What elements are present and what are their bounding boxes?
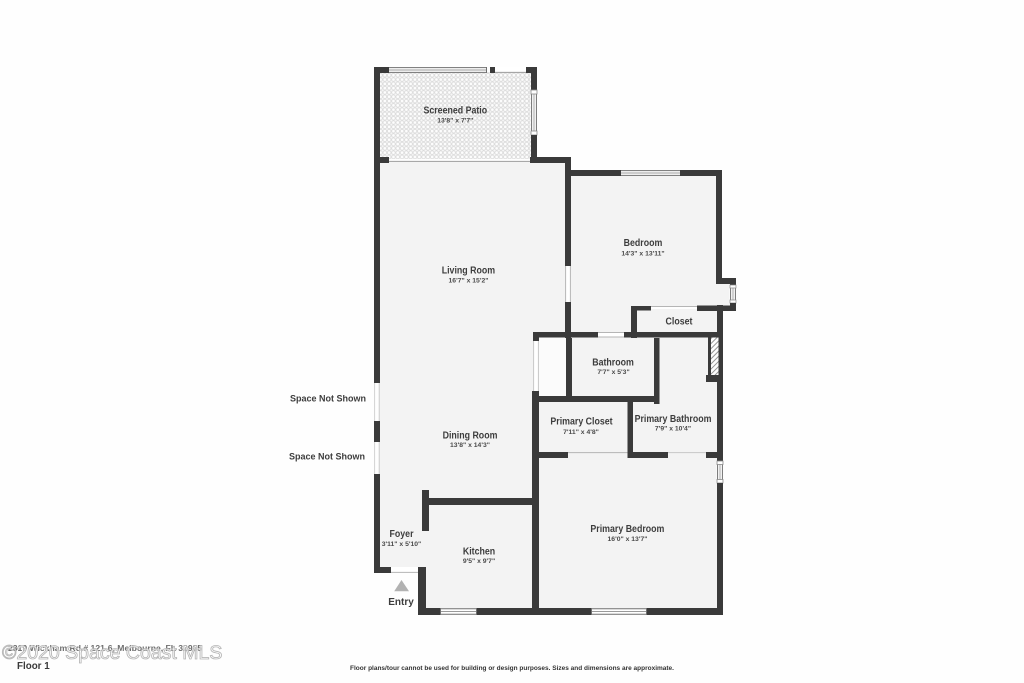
svg-text:Screened Patio: Screened Patio (423, 105, 487, 116)
svg-text:Primary Bathroom: Primary Bathroom (635, 414, 712, 425)
svg-text:3'11" x 5'10": 3'11" x 5'10" (382, 541, 422, 548)
svg-text:7'7" x 5'3": 7'7" x 5'3" (597, 369, 629, 376)
svg-text:Living Room: Living Room (442, 265, 495, 276)
svg-text:7'11" x 4'8": 7'11" x 4'8" (563, 429, 599, 436)
svg-text:Primary Bedroom: Primary Bedroom (590, 524, 664, 535)
svg-text:Space Not Shown: Space Not Shown (289, 452, 365, 462)
svg-text:Bedroom: Bedroom (624, 238, 663, 249)
svg-text:13'8" x 7'7": 13'8" x 7'7" (437, 117, 473, 124)
svg-text:Floor plans/tour cannot be use: Floor plans/tour cannot be used for buil… (350, 665, 674, 672)
svg-text:Dining Room: Dining Room (443, 430, 498, 441)
svg-text:14'3" x 13'11": 14'3" x 13'11" (621, 251, 664, 258)
svg-text:Entry: Entry (388, 597, 414, 608)
svg-text:Foyer: Foyer (390, 529, 414, 540)
svg-text:16'0" x 13'7": 16'0" x 13'7" (608, 536, 648, 543)
svg-text:Kitchen: Kitchen (463, 546, 496, 557)
svg-text:Closet: Closet (666, 316, 693, 327)
svg-text:Bathroom: Bathroom (592, 357, 634, 368)
svg-text:Primary Closet: Primary Closet (550, 416, 612, 427)
svg-text:9'5" x 9'7": 9'5" x 9'7" (463, 558, 495, 565)
svg-text:16'7" x 15'2": 16'7" x 15'2" (449, 278, 489, 285)
svg-text:Floor 1: Floor 1 (17, 661, 50, 672)
svg-text:13'8" x 14'3": 13'8" x 14'3" (450, 442, 490, 449)
svg-text:7'9" x 10'4": 7'9" x 10'4" (655, 426, 691, 433)
svg-text:Space Not Shown: Space Not Shown (290, 394, 366, 404)
